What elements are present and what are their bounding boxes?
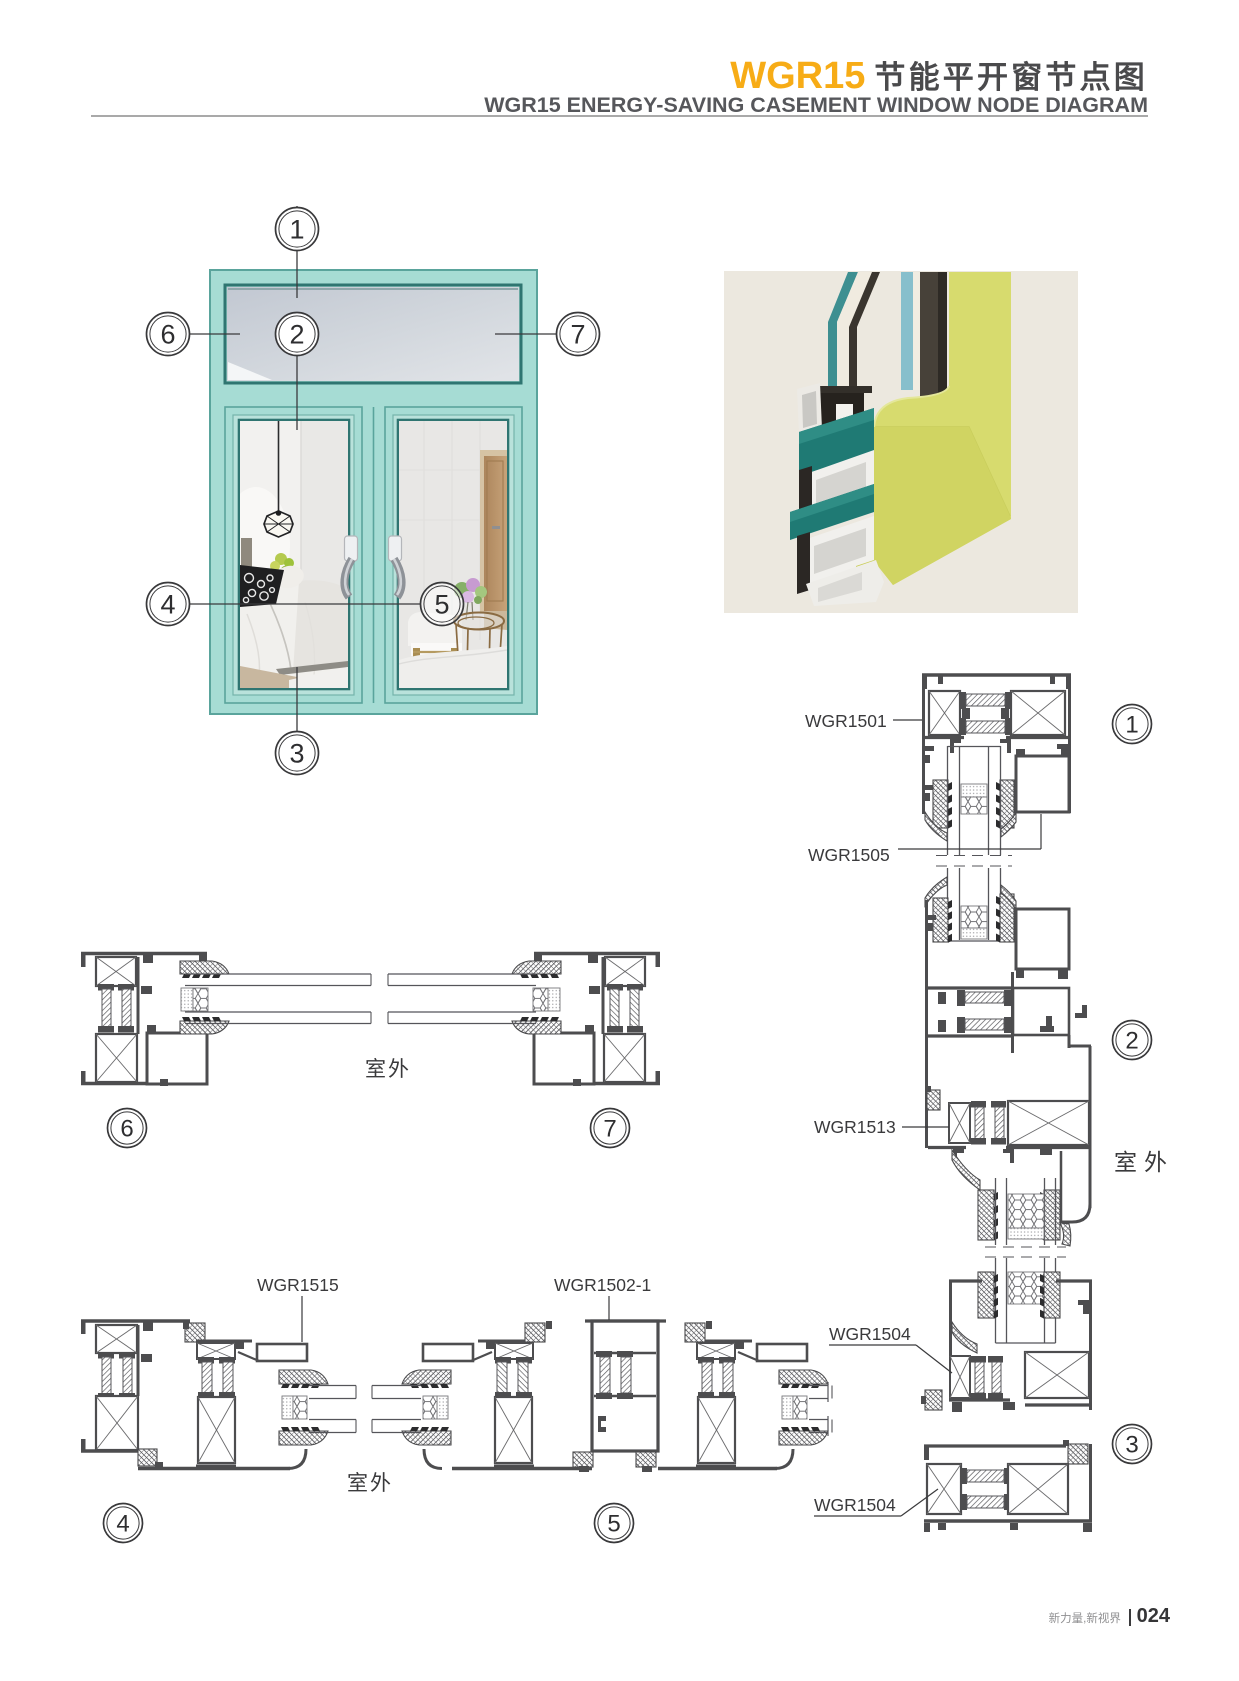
svg-text:WGR1501: WGR1501 [805, 711, 887, 731]
svg-text:5: 5 [434, 590, 449, 620]
svg-text:WGR1504: WGR1504 [829, 1324, 911, 1344]
svg-text:1: 1 [289, 215, 304, 245]
svg-text:5: 5 [607, 1511, 620, 1538]
svg-text:室外: 室外 [347, 1472, 393, 1495]
svg-text:7: 7 [570, 320, 585, 350]
svg-text:WGR1515: WGR1515 [257, 1275, 339, 1295]
svg-text:室外: 室外 [1114, 1149, 1174, 1175]
svg-text:6: 6 [160, 320, 175, 350]
svg-text:2: 2 [289, 320, 304, 350]
svg-text:3: 3 [1125, 1432, 1138, 1459]
svg-text:1: 1 [1125, 712, 1138, 739]
svg-text:3: 3 [289, 739, 304, 769]
svg-text:4: 4 [116, 1511, 129, 1538]
svg-text:室外: 室外 [365, 1058, 411, 1081]
svg-text:WGR1513: WGR1513 [814, 1117, 896, 1137]
svg-text:2: 2 [1125, 1028, 1138, 1055]
svg-text:7: 7 [603, 1116, 616, 1143]
svg-text:WGR1504: WGR1504 [814, 1495, 896, 1515]
svg-text:WGR1505: WGR1505 [808, 845, 890, 865]
svg-text:4: 4 [160, 590, 175, 620]
svg-text:WGR1502-1: WGR1502-1 [554, 1275, 651, 1295]
svg-text:6: 6 [120, 1116, 133, 1143]
